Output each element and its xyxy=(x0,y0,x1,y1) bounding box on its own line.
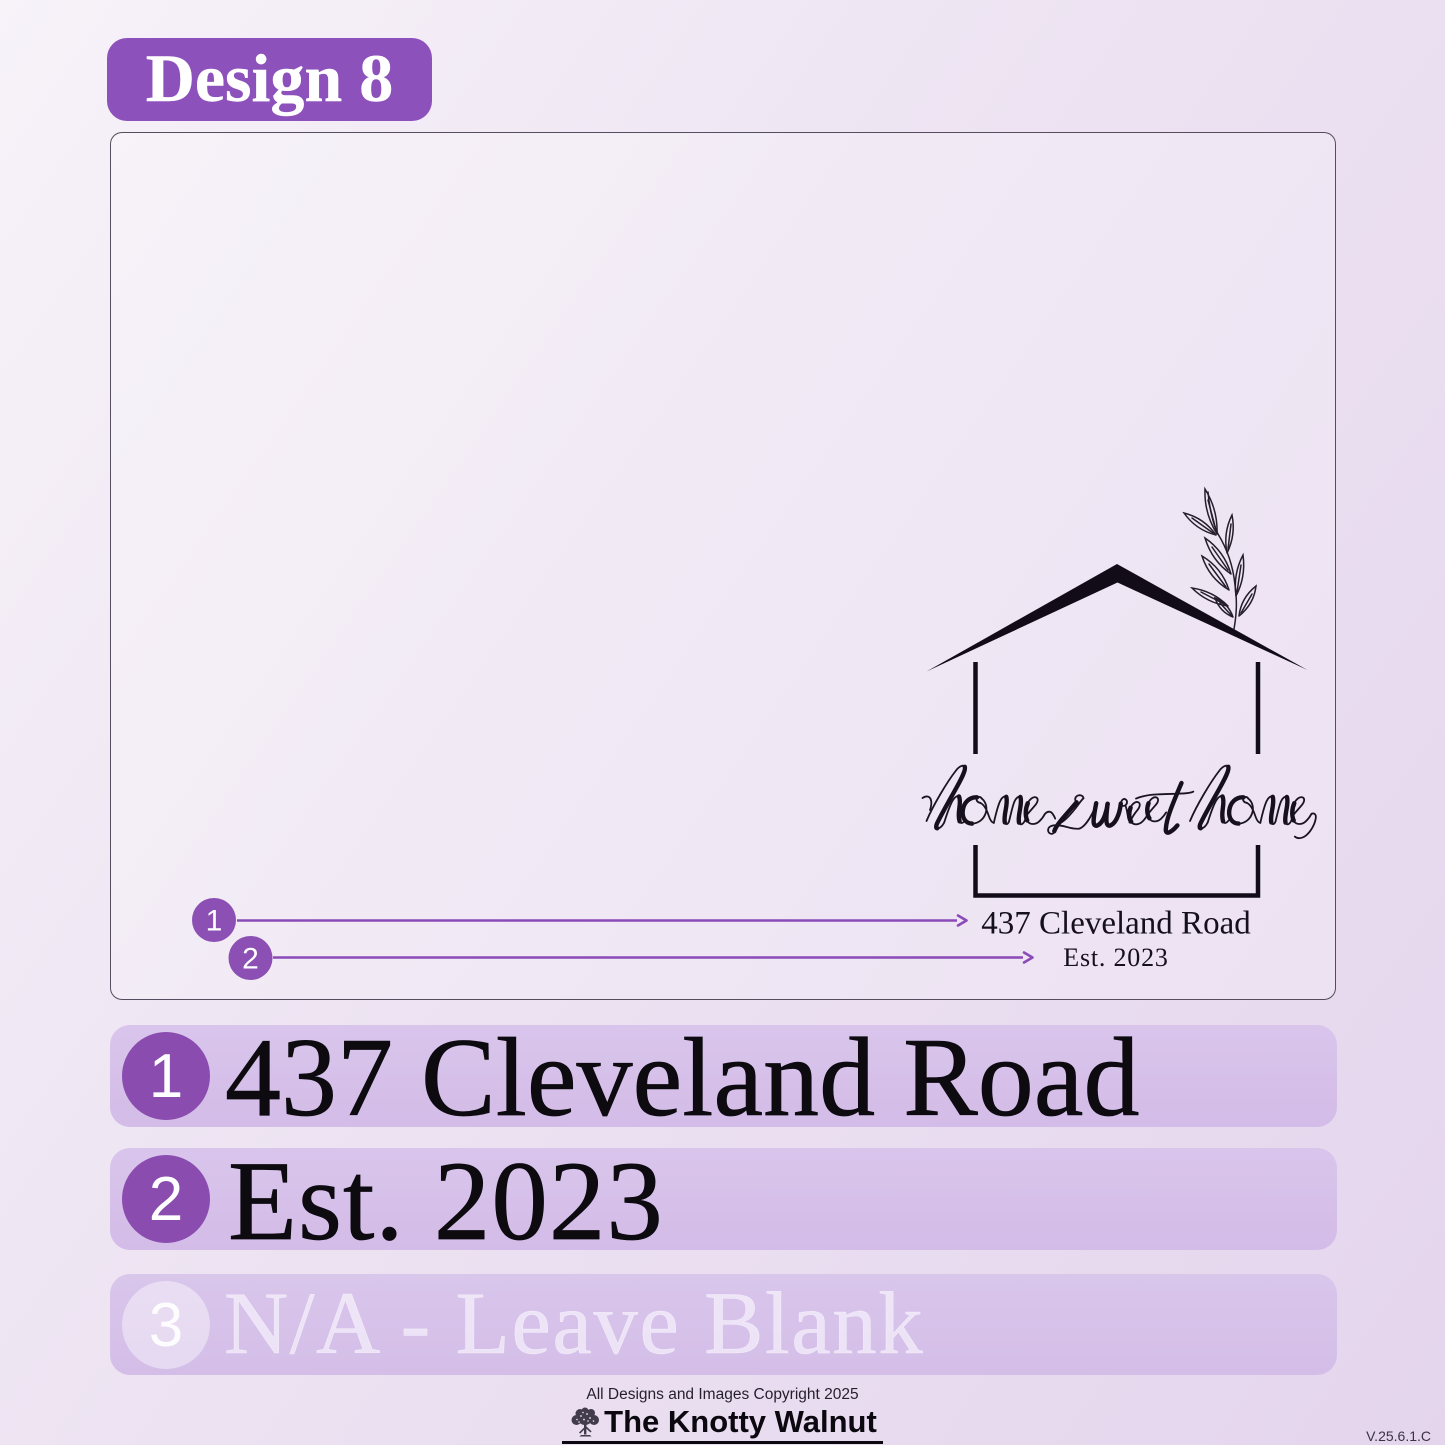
svg-text:437 Cleveland Road: 437 Cleveland Road xyxy=(981,906,1251,942)
svg-text:2: 2 xyxy=(242,943,259,976)
svg-text:1: 1 xyxy=(206,905,223,938)
svg-text:Est. 2023: Est. 2023 xyxy=(1063,943,1168,972)
